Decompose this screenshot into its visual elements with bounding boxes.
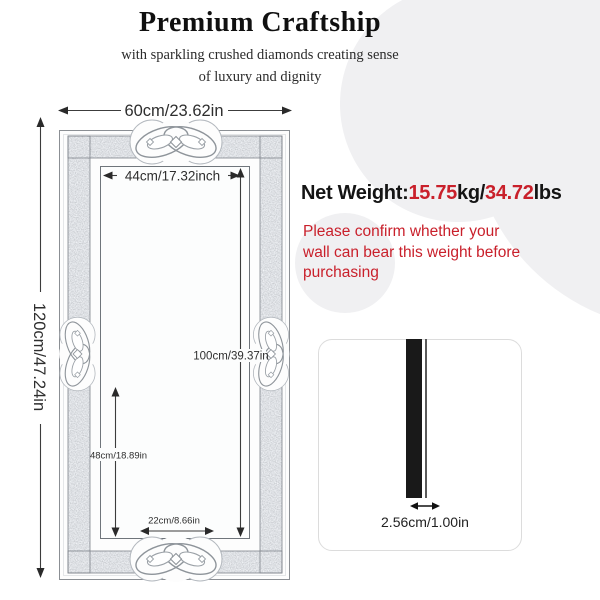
lower-section-label: 48cm/18.89in [90,451,147,462]
inner-height-label: 100cm/39.37in [193,351,268,363]
warning-line-3: purchasing [303,263,520,284]
header: Premium Craftship with sparkling crushed… [0,7,520,88]
outer-width-label: 60cm/23.62in [124,102,223,120]
net-weight-lbs-unit: lbs [534,182,562,204]
weight-warning: Please confirm whether your wall can bea… [303,222,520,284]
thickness-card: 2.56cm/1.00in [318,339,522,551]
subtitle-line-2: of luxury and dignity [0,67,520,89]
inner-width-label: 44cm/17.32inch [125,169,220,184]
double-arrow-icon [410,501,440,511]
net-weight-label: Net Weight: [301,182,408,204]
thickness-label: 2.56cm/1.00in [324,514,526,530]
outer-height-label: 120cm/47.24in [30,303,48,411]
warning-line-2: wall can bear this weight before [303,243,520,264]
bottom-width-label: 22cm/8.66in [148,516,200,527]
net-weight-kg-unit: kg/ [457,182,485,204]
mirror-side-profile [406,339,422,498]
net-weight-line: Net Weight:15.75kg/34.72lbs [301,182,562,205]
net-weight-lbs-value: 34.72 [485,182,534,204]
subtitle-line-1: with sparkling crushed diamonds creating… [0,45,520,67]
knot-ornament-bottom [130,536,222,582]
knot-ornament-top [130,119,222,165]
warning-line-1: Please confirm whether your [303,222,520,243]
mirror-side-edge-line [425,339,427,498]
page-title: Premium Craftship [0,7,520,39]
knot-ornament-left [59,317,96,391]
page-subtitle: with sparkling crushed diamonds creating… [0,45,520,88]
net-weight-kg-value: 15.75 [408,182,457,204]
